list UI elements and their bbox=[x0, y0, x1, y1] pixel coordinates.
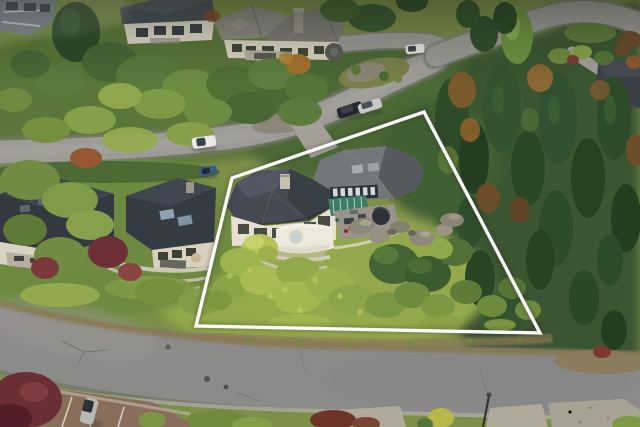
manhole bbox=[166, 345, 171, 350]
lot-vegetation bbox=[227, 273, 233, 279]
lot-vegetation bbox=[408, 258, 432, 274]
lot-vegetation bbox=[468, 339, 473, 344]
vehicles bbox=[196, 137, 206, 146]
right-forest bbox=[492, 86, 504, 114]
upper-left-vegetation bbox=[66, 210, 114, 240]
chimney bbox=[186, 182, 194, 193]
lamppost-head bbox=[487, 393, 492, 398]
upper-left-vegetation bbox=[20, 283, 100, 307]
lot-vegetation bbox=[267, 293, 273, 299]
manhole bbox=[224, 385, 229, 390]
upper-left-vegetation bbox=[224, 92, 276, 124]
skylight bbox=[367, 162, 379, 171]
upper-left-vegetation bbox=[102, 127, 158, 153]
bottom-frontage bbox=[607, 417, 610, 420]
bottom-frontage bbox=[579, 421, 582, 424]
lot-vegetation bbox=[420, 315, 460, 329]
lot-vegetation bbox=[450, 280, 482, 304]
atmosphere bbox=[0, 0, 640, 85]
lot-vegetation bbox=[429, 239, 453, 259]
window bbox=[363, 187, 368, 195]
manhole bbox=[204, 376, 210, 382]
window bbox=[370, 187, 375, 195]
lot-vegetation bbox=[258, 246, 278, 262]
rust-shrub bbox=[70, 148, 102, 168]
photo-layers bbox=[0, 0, 640, 427]
property-house bbox=[350, 210, 358, 214]
window bbox=[348, 188, 353, 196]
upper-left-vegetation bbox=[135, 278, 185, 306]
lot-vegetation bbox=[297, 307, 303, 313]
right-forest bbox=[521, 108, 539, 132]
right-forest bbox=[604, 96, 616, 124]
lot-vegetation bbox=[247, 267, 253, 273]
lot-vegetation bbox=[298, 342, 303, 347]
right-forest bbox=[548, 96, 560, 124]
window bbox=[340, 188, 345, 196]
upper-left-vegetation bbox=[118, 263, 142, 281]
right-forest bbox=[597, 234, 623, 286]
upper-left-vegetation bbox=[278, 98, 322, 126]
red-shrub bbox=[593, 346, 611, 358]
maple-tree bbox=[88, 236, 128, 268]
lot-vegetation bbox=[360, 220, 372, 226]
bottom-frontage bbox=[589, 407, 592, 410]
patio-umbrella bbox=[191, 253, 201, 263]
lot-vegetation bbox=[244, 235, 264, 249]
right-forest bbox=[511, 130, 545, 206]
patio-furniture bbox=[160, 259, 186, 268]
right-forest bbox=[571, 138, 605, 218]
lot-vegetation bbox=[421, 294, 455, 318]
skylight bbox=[351, 164, 363, 173]
lot-vegetation bbox=[449, 214, 461, 220]
right-forest bbox=[510, 197, 530, 223]
upper-left-vegetation bbox=[98, 83, 142, 109]
upper-left-vegetation bbox=[184, 98, 232, 126]
property-house bbox=[335, 218, 339, 222]
window bbox=[172, 250, 182, 258]
aerial-photo-canvas bbox=[0, 0, 640, 427]
upper-left-vegetation bbox=[64, 106, 116, 134]
window bbox=[333, 188, 338, 196]
lot-vegetation bbox=[248, 338, 253, 343]
upper-left-vegetation bbox=[134, 89, 186, 119]
right-forest bbox=[460, 118, 480, 142]
lot-vegetation bbox=[337, 293, 343, 299]
upper-left-vegetation bbox=[31, 257, 59, 279]
window bbox=[238, 224, 249, 234]
upper-left-vegetation bbox=[22, 117, 70, 143]
lot-vegetation bbox=[357, 309, 363, 315]
property-house bbox=[292, 233, 300, 241]
patio-furniture bbox=[14, 256, 24, 261]
lot-vegetation bbox=[312, 277, 318, 283]
lot-vegetation bbox=[373, 246, 399, 264]
right-forest bbox=[569, 270, 599, 326]
bottom-frontage bbox=[20, 382, 48, 402]
lot-vegetation bbox=[204, 290, 232, 310]
lot-vegetation bbox=[408, 230, 416, 236]
upper-left-vegetation bbox=[3, 214, 47, 246]
right-forest bbox=[601, 310, 627, 350]
lot-vegetation bbox=[419, 231, 431, 237]
lot-vegetation bbox=[387, 229, 397, 235]
lot-vegetation bbox=[477, 295, 507, 317]
right-forest bbox=[476, 183, 500, 213]
window bbox=[355, 187, 360, 195]
property-house bbox=[344, 229, 348, 233]
gravel-speck bbox=[569, 411, 572, 414]
right-forest bbox=[526, 230, 554, 290]
lot-vegetation bbox=[348, 343, 353, 348]
lot-vegetation bbox=[518, 337, 523, 342]
window bbox=[158, 252, 168, 260]
lot-vegetation bbox=[408, 342, 413, 347]
aerial-photo bbox=[0, 0, 640, 427]
lot-vegetation bbox=[282, 287, 288, 293]
skylight bbox=[20, 205, 31, 213]
